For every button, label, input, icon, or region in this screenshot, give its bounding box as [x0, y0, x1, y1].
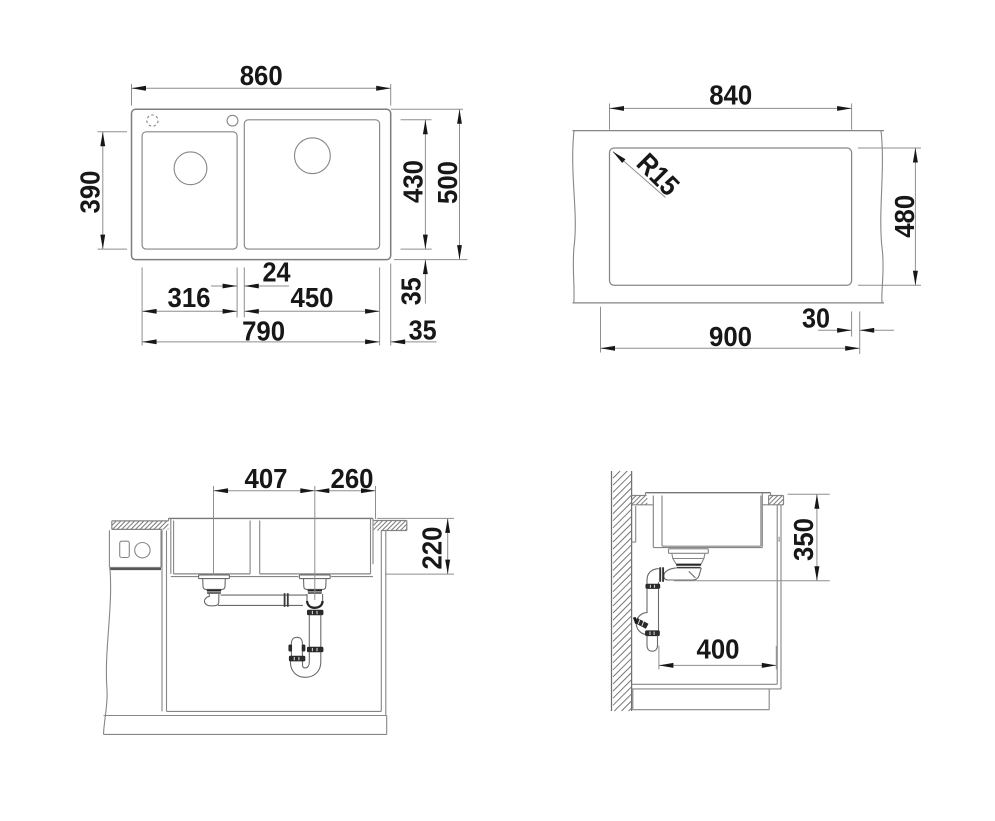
svg-text:407: 407 — [245, 462, 288, 494]
svg-text:860: 860 — [240, 59, 283, 91]
svg-text:430: 430 — [396, 160, 428, 203]
svg-text:R15: R15 — [631, 147, 686, 202]
svg-text:350: 350 — [787, 518, 819, 561]
svg-text:480: 480 — [888, 195, 920, 238]
svg-text:35: 35 — [394, 277, 426, 305]
svg-text:790: 790 — [242, 314, 285, 346]
svg-text:450: 450 — [291, 281, 334, 313]
svg-text:400: 400 — [697, 632, 740, 664]
svg-text:900: 900 — [709, 320, 752, 352]
svg-text:390: 390 — [74, 171, 106, 214]
svg-text:24: 24 — [263, 255, 291, 287]
svg-text:220: 220 — [415, 527, 447, 570]
svg-text:500: 500 — [431, 161, 463, 204]
svg-text:260: 260 — [331, 462, 374, 494]
svg-text:316: 316 — [168, 281, 211, 313]
svg-text:840: 840 — [709, 79, 752, 111]
svg-text:30: 30 — [802, 301, 830, 333]
svg-text:35: 35 — [409, 313, 437, 345]
